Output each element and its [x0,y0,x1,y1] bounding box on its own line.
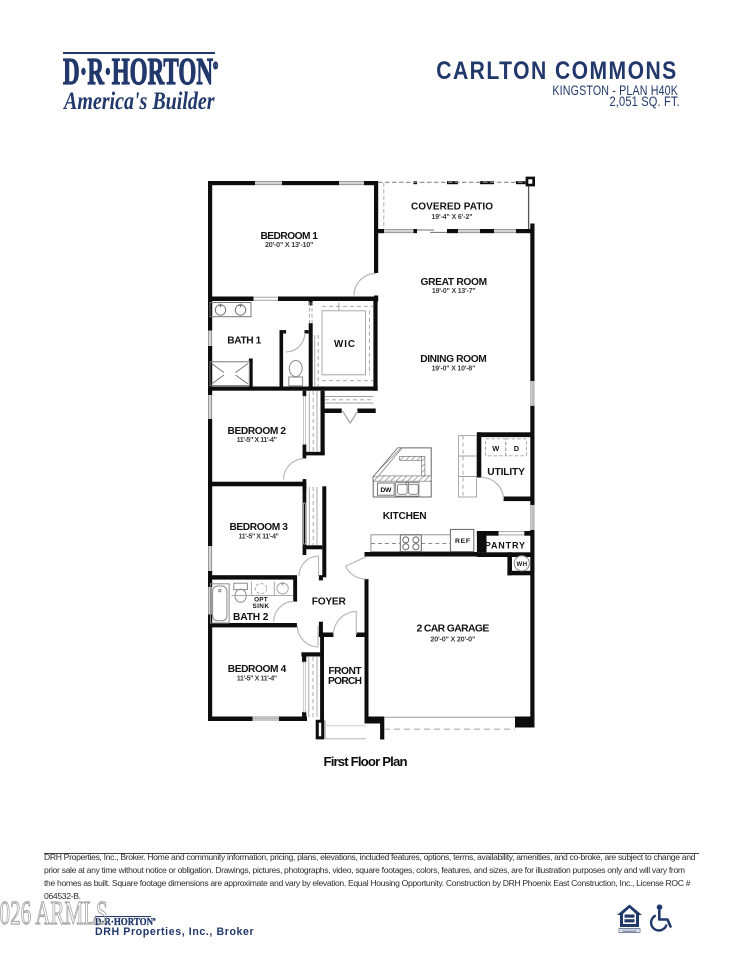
svg-text:PORCH: PORCH [328,676,362,687]
svg-text:GREAT ROOM: GREAT ROOM [420,277,487,288]
svg-text:DINING ROOM: DINING ROOM [420,354,487,365]
svg-text:11'-5" X 11'-4": 11'-5" X 11'-4" [237,673,277,682]
svg-text:DW: DW [380,487,392,494]
svg-text:19'-0" X 10'-8": 19'-0" X 10'-8" [432,366,476,373]
svg-text:PANTRY: PANTRY [485,541,525,551]
svg-text:W: W [492,444,499,453]
svg-text:11'-5" X 11'-4": 11'-5" X 11'-4" [239,531,279,540]
svg-text:BATH 1: BATH 1 [227,336,261,347]
svg-text:D: D [514,444,520,453]
svg-text:20'-0" X 13'-10": 20'-0" X 13'-10" [265,240,314,249]
svg-text:19'-4" X 6'-2": 19'-4" X 6'-2" [432,214,473,221]
svg-text:20'-0" X 20'-0": 20'-0" X 20'-0" [430,635,475,644]
svg-text:BATH 2: BATH 2 [233,612,269,623]
svg-text:KITCHEN: KITCHEN [383,511,427,522]
svg-text:11'-5" X 11'-4": 11'-5" X 11'-4" [237,435,277,444]
svg-text:REF: REF [455,538,470,545]
svg-text:COVERED PATIO: COVERED PATIO [411,202,493,213]
svg-text:WH: WH [517,562,528,568]
svg-text:SINK: SINK [252,603,269,610]
svg-text:First Floor Plan: First Floor Plan [324,754,408,769]
svg-text:19'-0" X 13'-7": 19'-0" X 13'-7" [432,288,476,295]
svg-text:2 CAR GARAGE: 2 CAR GARAGE [417,624,490,635]
svg-text:WIC: WIC [334,339,355,350]
svg-text:FOYER: FOYER [312,597,347,608]
svg-text:UTILITY: UTILITY [487,467,525,478]
